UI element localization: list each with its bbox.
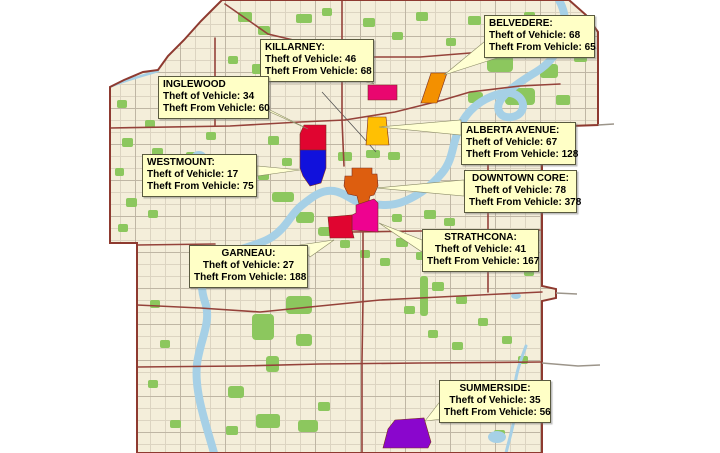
- region-killarney: [368, 85, 397, 100]
- region-inglewood: [300, 125, 326, 150]
- outside-roads: [542, 124, 614, 366]
- region-alberta-avenue: [366, 117, 389, 145]
- region-garneau: [328, 215, 354, 238]
- crime-map: BELVEDERE:Theft of Vehicle: 68Theft From…: [0, 0, 720, 453]
- basemap: [0, 0, 720, 453]
